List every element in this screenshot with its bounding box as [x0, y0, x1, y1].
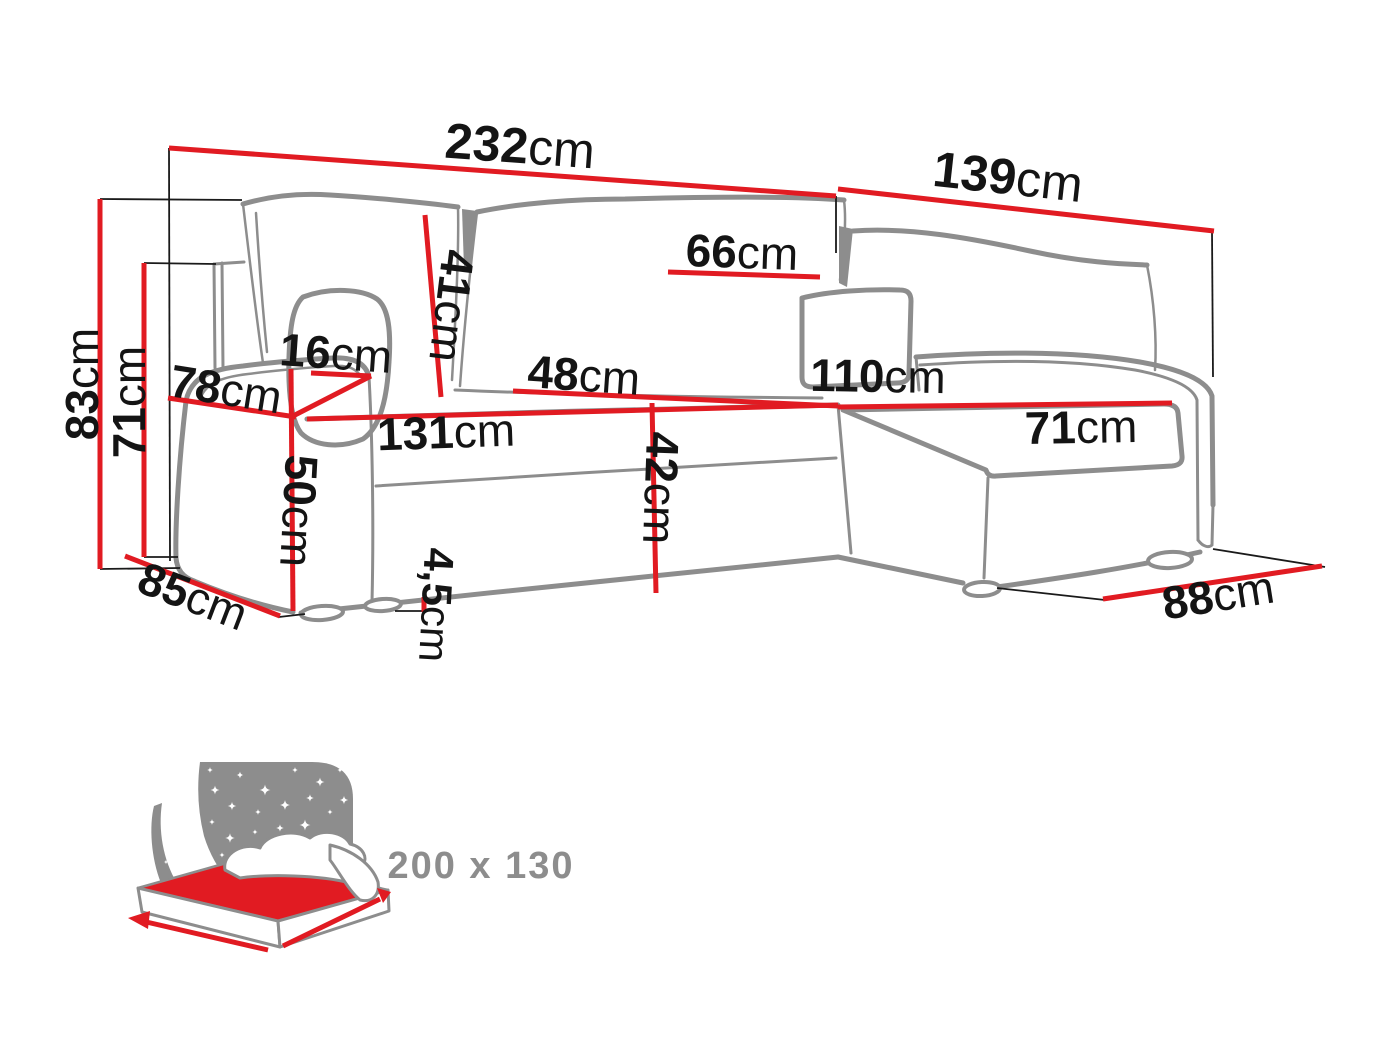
sofa-leg — [365, 598, 402, 612]
dim-line-armrest-front-edge — [293, 376, 371, 416]
sofa-dimensions-diagram: 232cm 139cm 66cm 41cm 16cm 78cm 50cm 48c… — [0, 0, 1387, 1040]
dim-label-leg-height: 4,5cm — [411, 547, 464, 664]
dim-label-total-width: 232cm — [443, 113, 597, 180]
sofa-leg — [964, 581, 1001, 597]
dim-label-depth-left: 85cm — [131, 552, 255, 641]
dim-label-seat-depth: 48cm — [526, 345, 642, 405]
dim-label-back-cushion-width: 66cm — [685, 224, 799, 280]
dim-label-armrest-front-height: 50cm — [270, 453, 328, 568]
diagram-canvas: 232cm 139cm 66cm 41cm 16cm 78cm 50cm 48c… — [0, 0, 1387, 1040]
dim-label-seat-height: 42cm — [633, 431, 689, 545]
dim-label-seat-width: 131cm — [376, 404, 516, 461]
dim-label-chaise-length: 110cm — [810, 349, 946, 403]
sleeping-function-icon: 200 x 130 — [128, 762, 575, 950]
sofa-leg — [301, 605, 344, 622]
dim-label-depth-right: 88cm — [1158, 561, 1277, 630]
sleeping-area-size: 200 x 130 — [387, 845, 574, 887]
dim-label-backrest-height: 71cm — [103, 346, 155, 459]
dim-label-total-height: 83cm — [56, 328, 108, 441]
sofa-leg — [1148, 551, 1193, 569]
night-panel-sliver — [151, 803, 177, 883]
dim-label-armrest-width: 16cm — [278, 323, 394, 383]
dim-label-chaise-seat-width: 71cm — [1024, 400, 1137, 454]
dimension-labels: 232cm 139cm 66cm 41cm 16cm 78cm 50cm 48c… — [56, 113, 1278, 664]
